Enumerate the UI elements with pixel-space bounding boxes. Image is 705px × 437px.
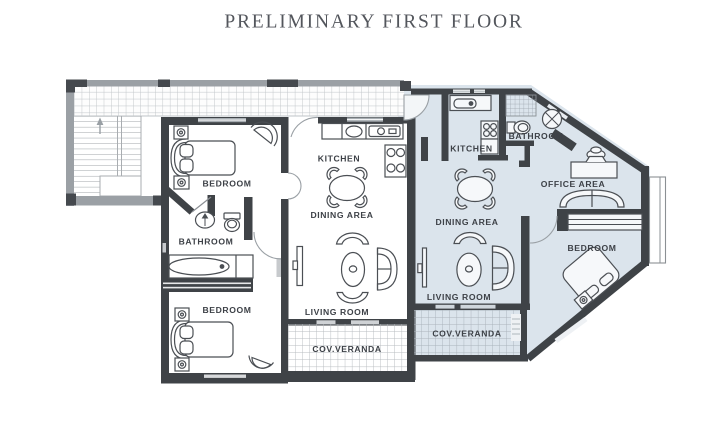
- svg-text:DINING AREA: DINING AREA: [435, 217, 498, 227]
- svg-text:PRELIMINARY FIRST FLOOR: PRELIMINARY FIRST FLOOR: [224, 12, 523, 33]
- svg-text:KITCHEN: KITCHEN: [450, 144, 492, 154]
- svg-text:KITCHEN: KITCHEN: [318, 154, 360, 164]
- svg-text:DINING AREA: DINING AREA: [310, 210, 373, 220]
- svg-text:BEDROOM: BEDROOM: [202, 179, 251, 189]
- svg-text:OFFICE AREA: OFFICE AREA: [541, 179, 606, 189]
- svg-text:BEDROOM: BEDROOM: [202, 305, 251, 315]
- svg-text:LIVING ROOM: LIVING ROOM: [305, 307, 369, 317]
- svg-text:BEDROOM: BEDROOM: [567, 243, 616, 253]
- svg-text:COV.VERANDA: COV.VERANDA: [432, 329, 501, 339]
- svg-text:LIVING ROOM: LIVING ROOM: [427, 292, 491, 302]
- svg-text:COV.VERANDA: COV.VERANDA: [312, 344, 381, 354]
- svg-text:BATHROOM: BATHROOM: [179, 237, 234, 247]
- svg-text:BATHROOM: BATHROOM: [509, 131, 564, 141]
